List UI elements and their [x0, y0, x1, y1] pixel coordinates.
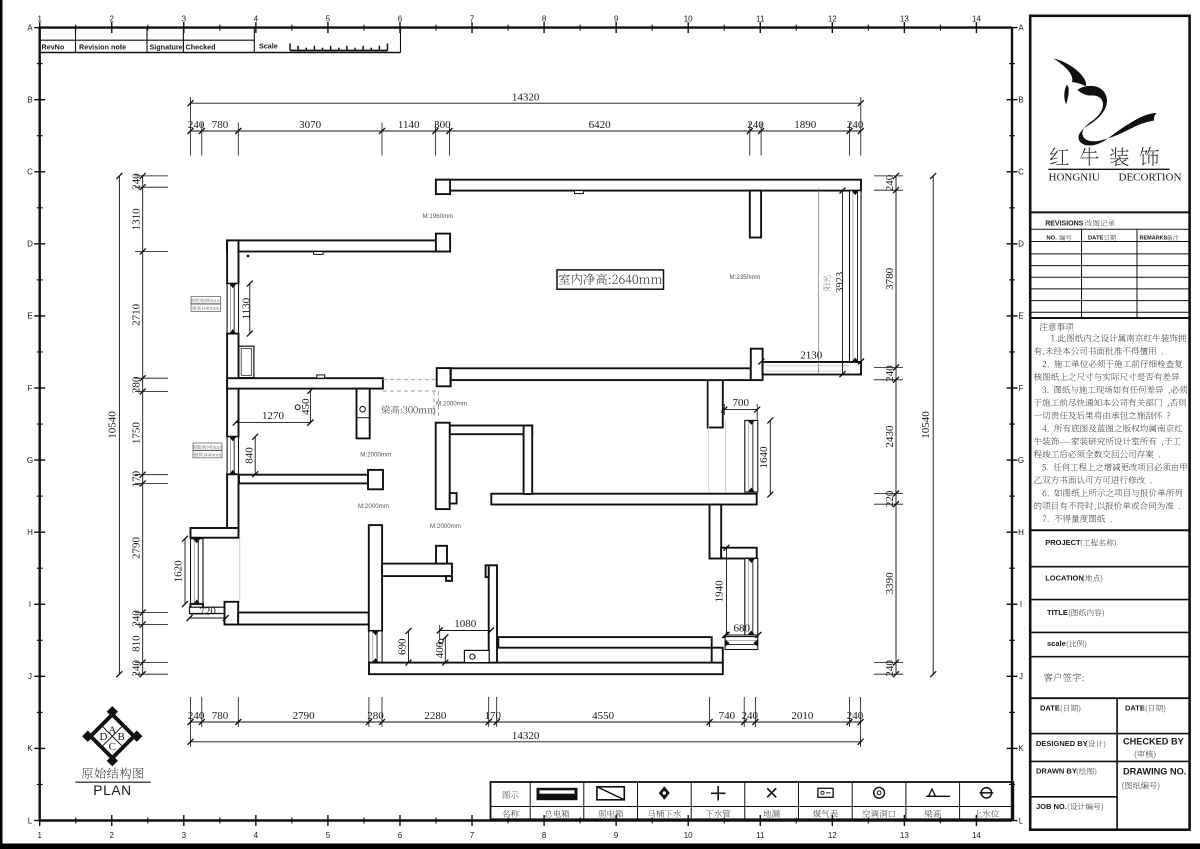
svg-text:C: C [27, 168, 33, 177]
svg-text:M:2350mm: M:2350mm [730, 274, 761, 281]
svg-text:F: F [1019, 384, 1024, 393]
svg-text:2: 2 [110, 831, 115, 840]
svg-text:G: G [27, 456, 33, 465]
svg-text:12: 12 [828, 15, 837, 24]
svg-text:1750: 1750 [131, 422, 143, 445]
svg-text:8: 8 [542, 831, 547, 840]
svg-text:Signature: Signature [150, 43, 183, 52]
svg-text:170: 170 [131, 470, 143, 487]
svg-text:9: 9 [614, 15, 619, 24]
svg-text:1140: 1140 [398, 119, 420, 131]
svg-text:2430: 2430 [884, 425, 896, 448]
svg-text:740: 740 [719, 710, 736, 722]
svg-text:H: H [27, 528, 33, 537]
svg-text:6420: 6420 [589, 119, 612, 131]
svg-text:240: 240 [884, 174, 896, 191]
svg-text:2790: 2790 [293, 710, 316, 722]
svg-text:G: G [1018, 456, 1024, 465]
svg-text:13: 13 [900, 831, 909, 840]
svg-text:J: J [1019, 672, 1023, 681]
svg-text:LOCATION: LOCATION [1045, 573, 1084, 582]
svg-text:240: 240 [884, 660, 896, 677]
svg-text:DATE: DATE [1088, 235, 1103, 241]
svg-text:TITLE: TITLE [1047, 608, 1068, 617]
svg-text:4550: 4550 [592, 710, 615, 722]
svg-text:12: 12 [828, 831, 837, 840]
svg-text:L: L [28, 816, 33, 825]
svg-text:7: 7 [470, 15, 475, 24]
svg-text:2710: 2710 [131, 303, 143, 326]
svg-text:Scale: Scale [259, 42, 278, 51]
svg-text:DESIGNED BY: DESIGNED BY [1036, 739, 1088, 748]
svg-text:A: A [1018, 23, 1024, 32]
svg-text:450: 450 [300, 398, 312, 415]
svg-text:10: 10 [684, 15, 693, 24]
svg-text:9: 9 [614, 831, 619, 840]
svg-text:Checked: Checked [186, 43, 216, 52]
svg-text:M:2000mm: M:2000mm [360, 451, 391, 458]
svg-text:REMARKS: REMARKS [1140, 235, 1168, 241]
svg-text:RevNo: RevNo [42, 43, 65, 52]
svg-text:240: 240 [847, 710, 864, 722]
svg-text:1270: 1270 [262, 410, 285, 422]
svg-text:DECORTION: DECORTION [1119, 172, 1182, 184]
svg-text:E: E [27, 312, 32, 321]
svg-text:3780: 3780 [884, 267, 896, 290]
svg-text:13: 13 [900, 15, 909, 24]
svg-text:A: A [27, 23, 33, 32]
svg-text:REVISIONS: REVISIONS [1045, 220, 1083, 227]
svg-text:D: D [1018, 240, 1024, 249]
svg-text:I: I [1020, 600, 1022, 609]
svg-text:C: C [1018, 168, 1024, 177]
svg-text:7: 7 [470, 831, 475, 840]
svg-text:280: 280 [367, 710, 384, 722]
svg-text:5: 5 [326, 15, 331, 24]
svg-text:690: 690 [397, 638, 409, 655]
svg-text:L: L [1019, 816, 1024, 825]
svg-text:240: 240 [131, 173, 143, 190]
svg-text:5: 5 [326, 831, 331, 840]
svg-text:DATE: DATE [1040, 704, 1060, 713]
svg-text:1640: 1640 [758, 446, 770, 469]
svg-text:240: 240 [131, 610, 143, 627]
svg-text:PROJECT: PROJECT [1045, 538, 1081, 547]
svg-text:720: 720 [199, 606, 216, 618]
svg-text:1: 1 [37, 15, 42, 24]
svg-text:700: 700 [733, 397, 750, 409]
svg-text:6: 6 [398, 15, 403, 24]
svg-text:scale: scale [1047, 639, 1066, 648]
svg-text:3070: 3070 [299, 119, 322, 131]
svg-text:2790: 2790 [131, 536, 143, 559]
svg-text:PLAN: PLAN [93, 783, 131, 798]
svg-text:220: 220 [884, 490, 896, 507]
svg-text:840: 840 [244, 447, 256, 464]
svg-text:780: 780 [212, 710, 229, 722]
svg-text:1620: 1620 [172, 560, 184, 583]
svg-text:E: E [1018, 312, 1023, 321]
svg-text:6: 6 [398, 831, 403, 840]
svg-text:10540: 10540 [920, 411, 932, 439]
svg-text:NO.: NO. [1047, 235, 1058, 241]
svg-text:M:2000mm: M:2000mm [436, 400, 467, 407]
svg-text:240: 240 [188, 710, 205, 722]
svg-text:170: 170 [484, 710, 501, 722]
svg-text:10: 10 [684, 831, 693, 840]
svg-text:10540: 10540 [106, 411, 118, 439]
svg-text:DRAWN BY: DRAWN BY [1036, 767, 1077, 776]
svg-text:240: 240 [847, 119, 864, 131]
svg-text:CHECKED BY: CHECKED BY [1123, 737, 1184, 747]
svg-text:4: 4 [254, 831, 259, 840]
svg-text:3923: 3923 [835, 272, 846, 293]
svg-text:K: K [27, 744, 33, 753]
svg-text:2010: 2010 [791, 710, 814, 722]
svg-text:1130: 1130 [241, 297, 253, 319]
svg-text:1940: 1940 [714, 580, 726, 603]
svg-text:B: B [117, 731, 124, 743]
svg-text:1080: 1080 [454, 618, 477, 630]
svg-text:I: I [29, 600, 31, 609]
svg-text:4: 4 [254, 15, 259, 24]
svg-text:M:2000mm: M:2000mm [358, 503, 389, 510]
svg-text:280: 280 [131, 376, 143, 393]
svg-text:H: H [1018, 528, 1024, 537]
svg-text:JOB NO.: JOB NO. [1036, 802, 1067, 811]
svg-text:M:1960mm: M:1960mm [423, 213, 454, 220]
svg-text:11: 11 [756, 15, 765, 24]
svg-text:300: 300 [434, 119, 451, 131]
svg-text:HONGNIU: HONGNIU [1049, 172, 1100, 184]
svg-text:2: 2 [110, 15, 115, 24]
svg-text:DRAWING NO.: DRAWING NO. [1123, 767, 1186, 777]
svg-text:F: F [28, 384, 33, 393]
svg-text:A: A [108, 725, 116, 737]
svg-text:14: 14 [972, 831, 981, 840]
svg-text:B: B [27, 95, 32, 104]
svg-text:3390: 3390 [884, 572, 896, 595]
svg-text:400: 400 [434, 641, 446, 658]
svg-text:680: 680 [733, 623, 750, 635]
svg-text:3: 3 [182, 15, 187, 24]
svg-text:D: D [100, 731, 108, 743]
svg-text:Revision note: Revision note [79, 43, 126, 52]
svg-text:14320: 14320 [512, 730, 540, 742]
svg-text:240: 240 [884, 365, 896, 382]
svg-text:240: 240 [131, 660, 143, 677]
svg-text:D: D [27, 240, 33, 249]
svg-text:240: 240 [747, 119, 764, 131]
svg-text:11: 11 [756, 831, 765, 840]
svg-text:M:2000mm: M:2000mm [430, 523, 461, 530]
svg-text:240: 240 [742, 710, 759, 722]
svg-text:DATE: DATE [1125, 704, 1145, 713]
svg-text:2130: 2130 [800, 350, 823, 362]
svg-text:1890: 1890 [794, 119, 817, 131]
svg-text:J: J [28, 672, 32, 681]
svg-text:1: 1 [37, 831, 42, 840]
svg-text:B: B [1018, 95, 1023, 104]
svg-text:1310: 1310 [131, 208, 143, 231]
svg-text:8: 8 [542, 15, 547, 24]
svg-text:C: C [109, 741, 116, 753]
svg-text:14: 14 [972, 15, 981, 24]
svg-text:14320: 14320 [512, 91, 540, 103]
svg-text:810: 810 [131, 635, 143, 652]
svg-text:780: 780 [212, 119, 229, 131]
svg-text:2280: 2280 [424, 710, 447, 722]
svg-text:K: K [1018, 744, 1024, 753]
svg-text:3: 3 [182, 831, 187, 840]
